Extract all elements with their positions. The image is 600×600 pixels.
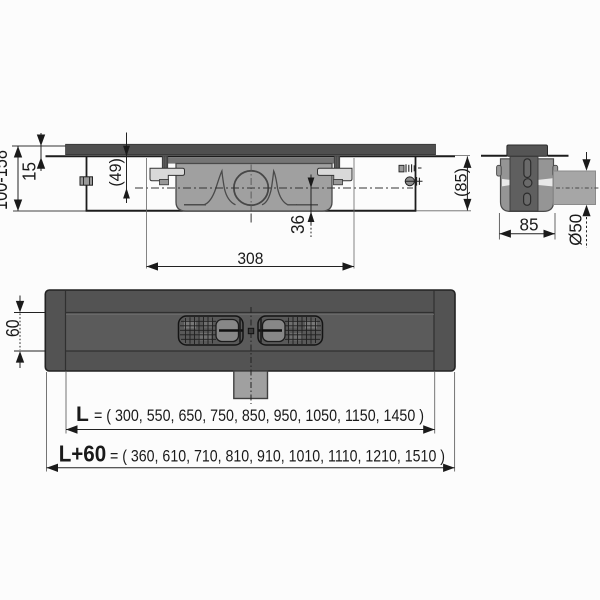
svg-text:L+60: L+60 [59, 441, 106, 467]
svg-text:= ( 300, 550, 650, 750, 850, 9: = ( 300, 550, 650, 750, 850, 950, 1050, … [94, 407, 424, 425]
svg-text:36: 36 [288, 215, 308, 234]
svg-text:L: L [76, 403, 89, 426]
svg-text:85: 85 [520, 215, 539, 235]
svg-text:308: 308 [237, 249, 263, 268]
svg-text:= ( 360, 610, 710, 810, 910, 1: = ( 360, 610, 710, 810, 910, 1010, 1110,… [110, 448, 445, 466]
svg-text:(85): (85) [451, 168, 470, 197]
svg-text:60: 60 [3, 320, 23, 338]
svg-text:100-158: 100-158 [0, 150, 12, 210]
svg-text:(49): (49) [106, 158, 125, 187]
svg-text:15: 15 [20, 162, 40, 181]
svg-text:Ø50: Ø50 [565, 214, 585, 246]
